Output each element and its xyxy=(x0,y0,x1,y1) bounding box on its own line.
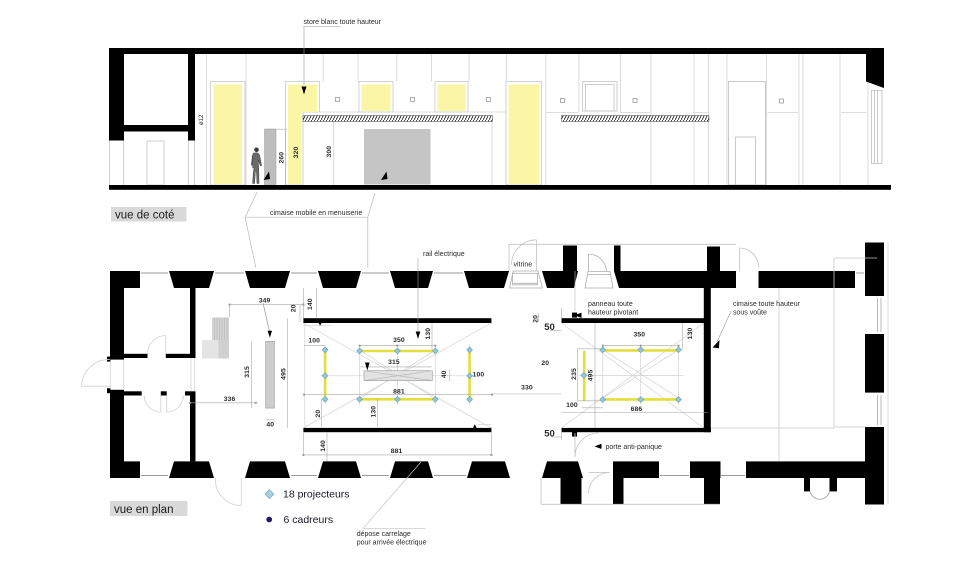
svg-text:panneau toute: panneau toute xyxy=(588,301,633,308)
svg-text:20: 20 xyxy=(290,304,297,312)
svg-text:sous voûte: sous voûte xyxy=(733,310,767,317)
svg-text:20: 20 xyxy=(532,315,539,323)
svg-text:350: 350 xyxy=(393,337,405,344)
svg-text:50: 50 xyxy=(544,322,555,333)
svg-text:100: 100 xyxy=(473,371,485,378)
svg-text:pour arrivée électrique: pour arrivée électrique xyxy=(357,540,427,547)
svg-text:20: 20 xyxy=(315,410,322,418)
svg-text:dépose carrelage: dépose carrelage xyxy=(357,531,411,538)
svg-text:store blanc toute hauteur: store blanc toute hauteur xyxy=(304,19,382,26)
svg-text:349: 349 xyxy=(259,298,271,305)
svg-text:300: 300 xyxy=(326,146,333,158)
svg-text:315: 315 xyxy=(244,366,251,378)
svg-text:100: 100 xyxy=(308,338,320,345)
svg-text:235: 235 xyxy=(571,368,578,380)
svg-text:320: 320 xyxy=(293,146,300,158)
svg-text:130: 130 xyxy=(687,328,694,340)
svg-text:vue de coté: vue de coté xyxy=(115,210,174,222)
svg-text:porte anti-panique: porte anti-panique xyxy=(606,444,663,451)
svg-text:rail électrique: rail électrique xyxy=(423,251,465,258)
svg-text:cimaise toute hauteur: cimaise toute hauteur xyxy=(733,301,801,308)
svg-text:130: 130 xyxy=(371,406,378,418)
svg-text:cimaise mobile en menuiserie: cimaise mobile en menuiserie xyxy=(270,210,362,217)
svg-text:130: 130 xyxy=(425,328,432,340)
svg-text:881: 881 xyxy=(391,448,403,455)
svg-text:336: 336 xyxy=(224,396,236,403)
svg-text:140: 140 xyxy=(307,298,314,310)
svg-text:350: 350 xyxy=(633,331,645,338)
svg-text:330: 330 xyxy=(521,385,533,392)
svg-text:ø12: ø12 xyxy=(199,114,205,125)
svg-text:hauteur pivotant: hauteur pivotant xyxy=(588,310,638,317)
svg-text:6 cadreurs: 6 cadreurs xyxy=(284,514,334,526)
svg-text:881: 881 xyxy=(393,388,405,395)
svg-text:18 projecteurs: 18 projecteurs xyxy=(283,489,350,501)
svg-text:495: 495 xyxy=(587,369,594,381)
svg-text:686: 686 xyxy=(631,406,643,413)
svg-text:vue en plan: vue en plan xyxy=(114,504,173,516)
svg-text:20: 20 xyxy=(541,360,549,367)
svg-text:495: 495 xyxy=(280,368,287,380)
svg-text:100: 100 xyxy=(566,402,578,409)
svg-text:40: 40 xyxy=(266,421,274,428)
svg-text:vitrine: vitrine xyxy=(514,262,533,269)
svg-text:50: 50 xyxy=(544,429,555,440)
svg-text:140: 140 xyxy=(320,440,327,452)
svg-text:315: 315 xyxy=(388,359,400,366)
svg-text:260: 260 xyxy=(279,152,286,164)
svg-text:40: 40 xyxy=(441,370,448,378)
